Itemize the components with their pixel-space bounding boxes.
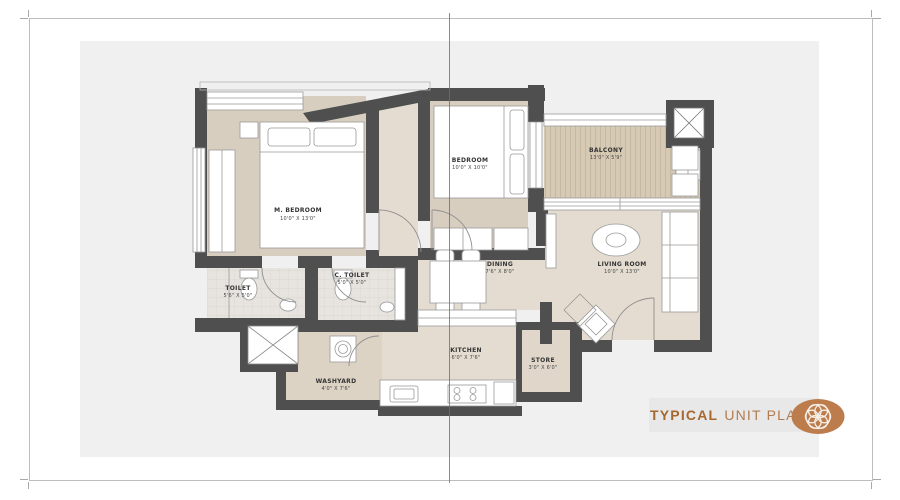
side-table-icon — [240, 122, 258, 138]
svg-text:7'6" X 8'0": 7'6" X 8'0" — [486, 269, 515, 275]
svg-text:TOILET: TOILET — [225, 285, 251, 292]
wardrobe-icon — [209, 150, 235, 252]
page-fold-line — [449, 13, 450, 483]
window-bedroom-balcony — [530, 122, 542, 188]
svg-text:4'0" X 7'6": 4'0" X 7'6" — [322, 386, 351, 392]
sink-icon — [390, 386, 418, 402]
svg-text:WASHYARD: WASHYARD — [316, 378, 357, 385]
plan-title: TYPICALUNIT PLAN — [649, 398, 809, 432]
duct-box-icon — [248, 326, 298, 364]
hob-icon — [448, 385, 486, 403]
toilet-counter — [395, 268, 405, 320]
washbasin-icon — [380, 302, 394, 312]
svg-text:STORE: STORE — [531, 357, 555, 364]
floor-passage — [379, 101, 418, 256]
appliance-icon — [494, 382, 514, 404]
planter-icon — [672, 174, 698, 196]
svg-text:C. TOILET: C. TOILET — [335, 272, 371, 279]
svg-text:10'0" X 13'0": 10'0" X 13'0" — [280, 216, 316, 222]
window-m-bedroom-left — [193, 148, 205, 252]
svg-text:BALCONY: BALCONY — [589, 147, 623, 154]
svg-text:KITCHEN: KITCHEN — [450, 347, 482, 354]
tv-unit-icon — [546, 214, 556, 268]
svg-text:DINING: DINING — [487, 261, 513, 268]
window-balcony-top — [544, 114, 666, 126]
sliding-door-balcony — [544, 198, 700, 210]
plan-title-bold: TYPICAL — [650, 407, 718, 423]
washing-machine-icon — [330, 336, 356, 362]
ledge-line — [200, 82, 430, 90]
svg-text:5'6" X 5'0": 5'6" X 5'0" — [224, 293, 253, 299]
svg-text:LIVING ROOM: LIVING ROOM — [597, 261, 646, 268]
coffee-table-icon — [592, 224, 640, 256]
window-m-bedroom-top — [207, 92, 303, 110]
sofa-icon — [662, 212, 698, 312]
bed-icon — [260, 122, 364, 248]
svg-text:13'0" X 5'9": 13'0" X 5'9" — [590, 155, 622, 161]
svg-text:M. BEDROOM: M. BEDROOM — [274, 207, 322, 214]
duct-shaft-icon — [674, 108, 704, 138]
svg-text:3'0" X 6'0": 3'0" X 6'0" — [529, 365, 558, 371]
brand-logo — [790, 398, 846, 435]
svg-text:BEDROOM: BEDROOM — [452, 157, 489, 164]
planter-icon — [672, 146, 698, 170]
svg-text:5'0" X 5'0": 5'0" X 5'0" — [338, 280, 367, 286]
svg-text:10'0" X 10'0": 10'0" X 10'0" — [452, 165, 488, 171]
svg-text:6'0" X 7'6": 6'0" X 7'6" — [452, 355, 481, 361]
svg-text:10'0" X 13'0": 10'0" X 13'0" — [604, 269, 640, 275]
